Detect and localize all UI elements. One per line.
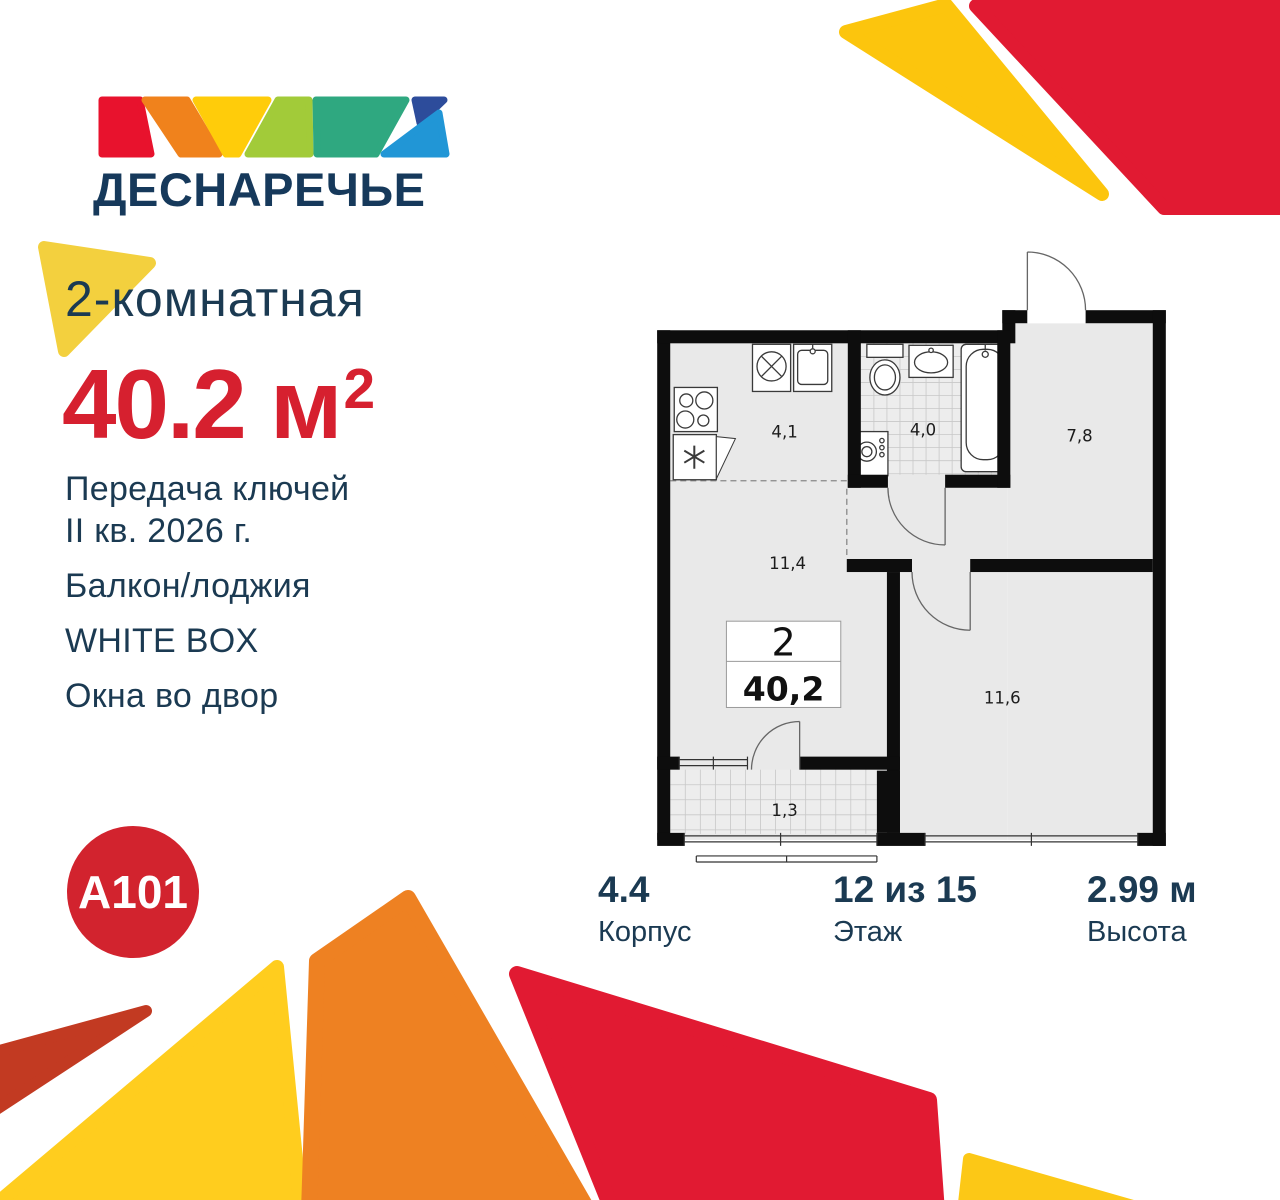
stat-height: 2.99 м Высота xyxy=(1087,869,1197,949)
kitchen-sink-icon xyxy=(794,344,832,391)
room-area-label-hall: 7,8 xyxy=(1066,427,1092,446)
room-area-label-balcony: 1,3 xyxy=(771,801,797,820)
listing-card: { "logo": { "title": "ДЕСНАРЕЧЬЕ" }, "li… xyxy=(0,0,1280,1200)
stove-icon xyxy=(674,387,717,431)
stat-floor-label: Этаж xyxy=(833,916,977,949)
room-area-label-bedroom: 11,6 xyxy=(984,688,1021,707)
plan-badge: 2 40,2 xyxy=(726,620,840,708)
feature-windows: Окна во двор xyxy=(65,675,349,717)
room-area-label-living: 11,4 xyxy=(769,554,806,573)
project-logo: ДЕСНАРЕЧЬЕ xyxy=(95,96,475,217)
feature-list: Передача ключей II кв. 2026 г. Балкон/ло… xyxy=(65,468,349,730)
room-area-label-kitchen: 4,1 xyxy=(771,423,797,442)
entrance-door xyxy=(1027,252,1085,310)
badge-total-area: 40,2 xyxy=(743,669,825,708)
developer-logo: A101 xyxy=(67,826,199,958)
feature-balcony: Балкон/лоджия xyxy=(65,565,349,607)
stat-floor-value: 12 из 15 xyxy=(833,869,977,911)
project-name: ДЕСНАРЕЧЬЕ xyxy=(93,162,475,217)
project-logo-icon xyxy=(95,96,452,158)
washer-icon xyxy=(752,344,790,391)
area-value: 40.2 м xyxy=(62,349,340,459)
apartment-type-title: 2-комнатная xyxy=(65,270,365,328)
feature-whitebox: WHITE BOX xyxy=(65,620,349,662)
stat-building-value: 4.4 xyxy=(598,869,692,911)
balcony-rail xyxy=(696,856,877,862)
toilet-icon xyxy=(867,344,903,395)
stat-building: 4.4 Корпус xyxy=(598,869,692,949)
area-superscript: 2 xyxy=(343,358,373,421)
feature-keys-handover: Передача ключей II кв. 2026 г. xyxy=(65,468,349,552)
floor-plan: 2 40,2 4,1 4,0 7,8 11,4 11,6 1,3 xyxy=(654,250,1166,872)
bath-sink-icon xyxy=(909,345,953,377)
stat-height-value: 2.99 м xyxy=(1087,869,1197,911)
apartment-area: 40.2 м2 xyxy=(62,348,373,461)
badge-rooms-count: 2 xyxy=(771,620,795,664)
card-content: ДЕСНАРЕЧЬЕ 2-комнатная 40.2 м2 Передача … xyxy=(0,0,1280,1200)
room-area-label-bathroom: 4,0 xyxy=(910,421,936,440)
stat-height-label: Высота xyxy=(1087,916,1197,949)
stat-building-label: Корпус xyxy=(598,916,692,949)
stat-floor: 12 из 15 Этаж xyxy=(833,869,977,949)
